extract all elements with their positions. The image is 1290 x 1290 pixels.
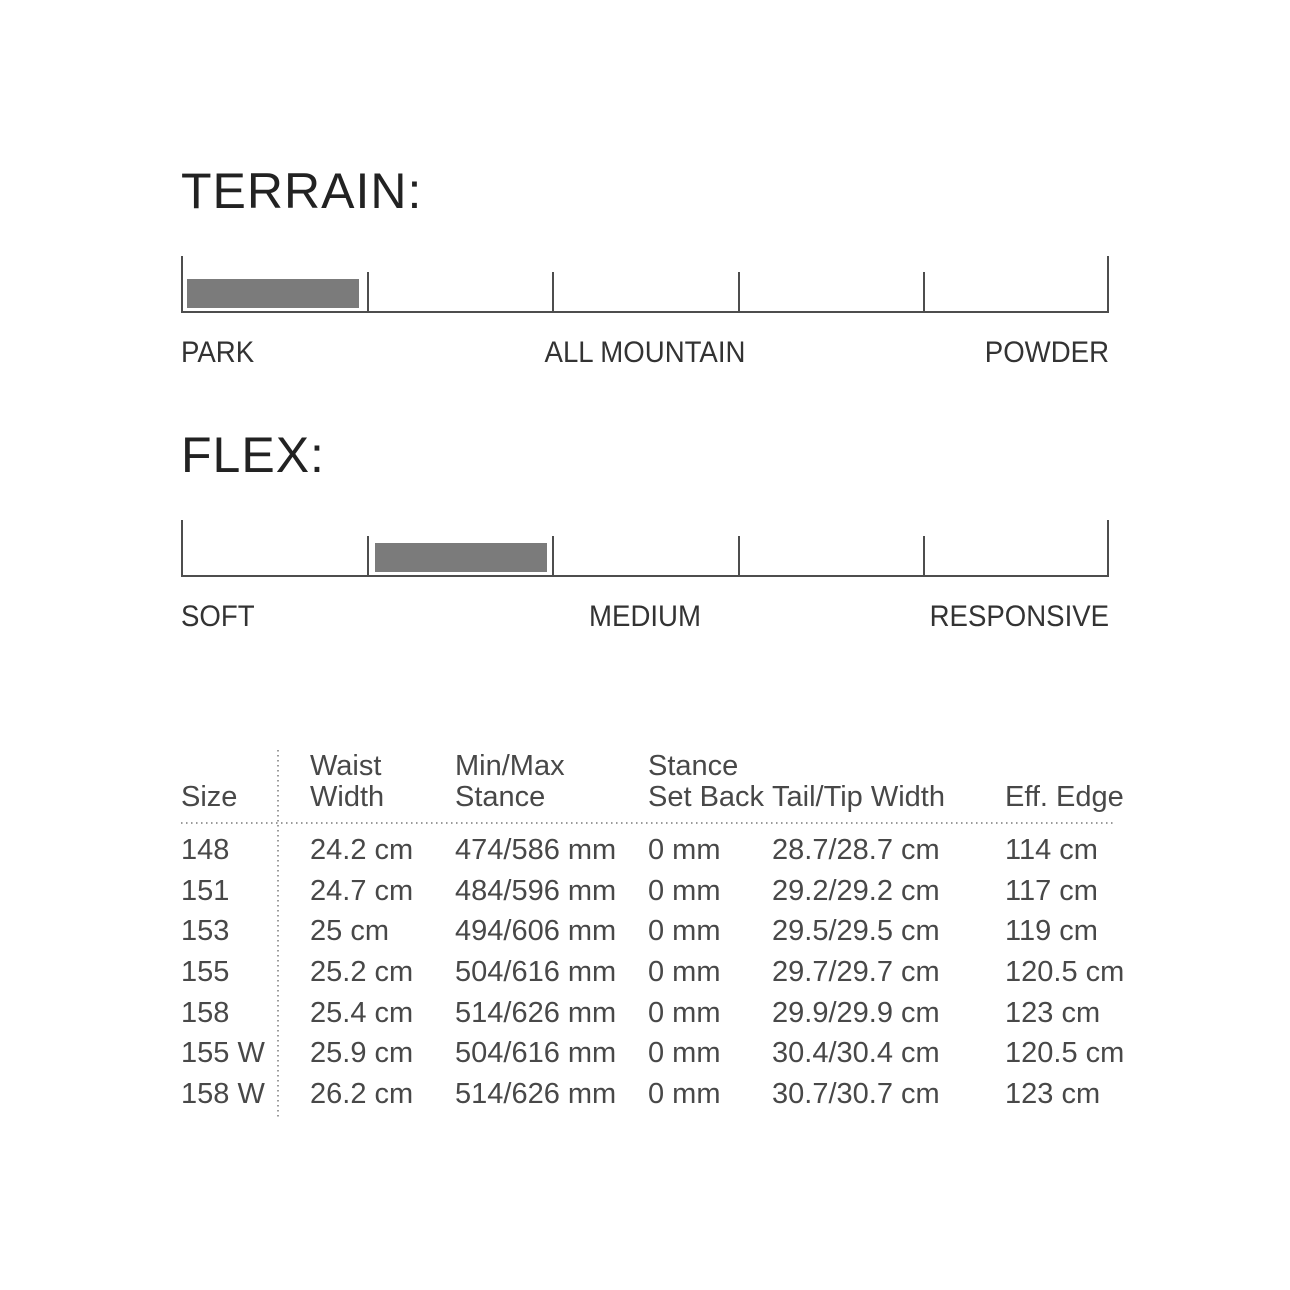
- cell-size: 151: [181, 871, 229, 912]
- cell-tailtip: 29.7/29.7 cm: [772, 952, 940, 993]
- terrain-scale-tick-start: [181, 256, 183, 313]
- terrain-label-park: PARK: [181, 338, 254, 368]
- cell-waist: 25.9 cm: [310, 1033, 413, 1074]
- cell-stance: 474/586 mm: [455, 830, 616, 871]
- terrain-scale-tick-end: [1107, 256, 1109, 313]
- flex-label-responsive: RESPONSIVE: [930, 602, 1109, 632]
- table-row: 148 24.2 cm 474/586 mm 0 mm 28.7/28.7 cm…: [181, 830, 1114, 871]
- cell-waist: 25 cm: [310, 911, 389, 952]
- cell-stance: 484/596 mm: [455, 871, 616, 912]
- cell-setback: 0 mm: [648, 1033, 721, 1074]
- table-row: 158 W 26.2 cm 514/626 mm 0 mm 30.7/30.7 …: [181, 1074, 1114, 1115]
- cell-effedge: 120.5 cm: [1005, 1033, 1124, 1074]
- cell-effedge: 123 cm: [1005, 1074, 1100, 1115]
- cell-tailtip: 29.9/29.9 cm: [772, 993, 940, 1034]
- table-row: 151 24.7 cm 484/596 mm 0 mm 29.2/29.2 cm…: [181, 871, 1114, 912]
- flex-label-medium: MEDIUM: [589, 602, 701, 632]
- header-stance-setback: StanceSet Back: [648, 751, 764, 813]
- flex-scale-baseline: [181, 575, 1109, 577]
- horizontal-dotted-divider: [181, 822, 1114, 824]
- table-row: 153 25 cm 494/606 mm 0 mm 29.5/29.5 cm 1…: [181, 911, 1114, 952]
- cell-tailtip: 30.7/30.7 cm: [772, 1074, 940, 1115]
- flex-label-soft: SOFT: [181, 602, 255, 632]
- cell-size: 148: [181, 830, 229, 871]
- cell-effedge: 117 cm: [1005, 871, 1098, 912]
- terrain-scale-tick: [367, 272, 369, 313]
- cell-waist: 24.2 cm: [310, 830, 413, 871]
- table-row: 158 25.4 cm 514/626 mm 0 mm 29.9/29.9 cm…: [181, 993, 1114, 1034]
- cell-stance: 514/626 mm: [455, 993, 616, 1034]
- terrain-label-powder: POWDER: [985, 338, 1109, 368]
- flex-section-title: FLEX:: [181, 430, 325, 480]
- cell-waist: 26.2 cm: [310, 1074, 413, 1115]
- spec-table-body: 148 24.2 cm 474/586 mm 0 mm 28.7/28.7 cm…: [181, 830, 1114, 1115]
- cell-tailtip: 30.4/30.4 cm: [772, 1033, 940, 1074]
- header-eff-edge: Eff. Edge: [1005, 782, 1124, 813]
- terrain-section-title: TERRAIN:: [181, 166, 422, 216]
- cell-stance: 514/626 mm: [455, 1074, 616, 1115]
- flex-rating-scale: [181, 520, 1109, 577]
- flex-scale-tick-start: [181, 520, 183, 577]
- cell-effedge: 120.5 cm: [1005, 952, 1124, 993]
- cell-effedge: 123 cm: [1005, 993, 1100, 1034]
- cell-tailtip: 29.5/29.5 cm: [772, 911, 940, 952]
- flex-scale-labels: SOFT MEDIUM RESPONSIVE: [181, 602, 1109, 632]
- cell-size: 155: [181, 952, 229, 993]
- flex-scale-tick: [738, 536, 740, 577]
- cell-setback: 0 mm: [648, 911, 721, 952]
- cell-waist: 25.2 cm: [310, 952, 413, 993]
- cell-setback: 0 mm: [648, 993, 721, 1034]
- cell-size: 158: [181, 993, 229, 1034]
- header-size: Size: [181, 782, 237, 813]
- terrain-scale-tick: [923, 272, 925, 313]
- cell-tailtip: 29.2/29.2 cm: [772, 871, 940, 912]
- cell-effedge: 114 cm: [1005, 830, 1098, 871]
- cell-effedge: 119 cm: [1005, 911, 1098, 952]
- header-minmax-stance: Min/MaxStance: [455, 751, 565, 813]
- cell-stance: 504/616 mm: [455, 1033, 616, 1074]
- cell-stance: 504/616 mm: [455, 952, 616, 993]
- flex-scale-tick: [552, 536, 554, 577]
- terrain-rating-scale: [181, 256, 1109, 313]
- size-spec-table: Size WaistWidth Min/MaxStance StanceSet …: [181, 744, 1114, 1124]
- cell-tailtip: 28.7/28.7 cm: [772, 830, 940, 871]
- header-tailtip-width: Tail/Tip Width: [772, 782, 945, 813]
- cell-stance: 494/606 mm: [455, 911, 616, 952]
- table-row: 155 W 25.9 cm 504/616 mm 0 mm 30.4/30.4 …: [181, 1033, 1114, 1074]
- cell-waist: 25.4 cm: [310, 993, 413, 1034]
- flex-scale-tick: [367, 536, 369, 577]
- terrain-label-all-mountain: ALL MOUNTAIN: [545, 338, 746, 368]
- cell-setback: 0 mm: [648, 952, 721, 993]
- cell-setback: 0 mm: [648, 830, 721, 871]
- flex-rating-bar: [375, 543, 547, 572]
- cell-size: 153: [181, 911, 229, 952]
- terrain-scale-tick: [738, 272, 740, 313]
- terrain-scale-baseline: [181, 311, 1109, 313]
- cell-setback: 0 mm: [648, 1074, 721, 1115]
- cell-size: 155 W: [181, 1033, 265, 1074]
- spec-sheet-page: TERRAIN: PARK ALL MOUNTAIN POWDER FLEX: …: [0, 0, 1290, 1290]
- header-waist-width: WaistWidth: [310, 751, 384, 813]
- cell-waist: 24.7 cm: [310, 871, 413, 912]
- table-row: 155 25.2 cm 504/616 mm 0 mm 29.7/29.7 cm…: [181, 952, 1114, 993]
- terrain-rating-bar: [187, 279, 359, 308]
- flex-scale-tick-end: [1107, 520, 1109, 577]
- spec-table-header: Size WaistWidth Min/MaxStance StanceSet …: [181, 744, 1114, 813]
- terrain-scale-labels: PARK ALL MOUNTAIN POWDER: [181, 338, 1109, 368]
- terrain-scale-tick: [552, 272, 554, 313]
- flex-scale-tick: [923, 536, 925, 577]
- cell-size: 158 W: [181, 1074, 265, 1115]
- cell-setback: 0 mm: [648, 871, 721, 912]
